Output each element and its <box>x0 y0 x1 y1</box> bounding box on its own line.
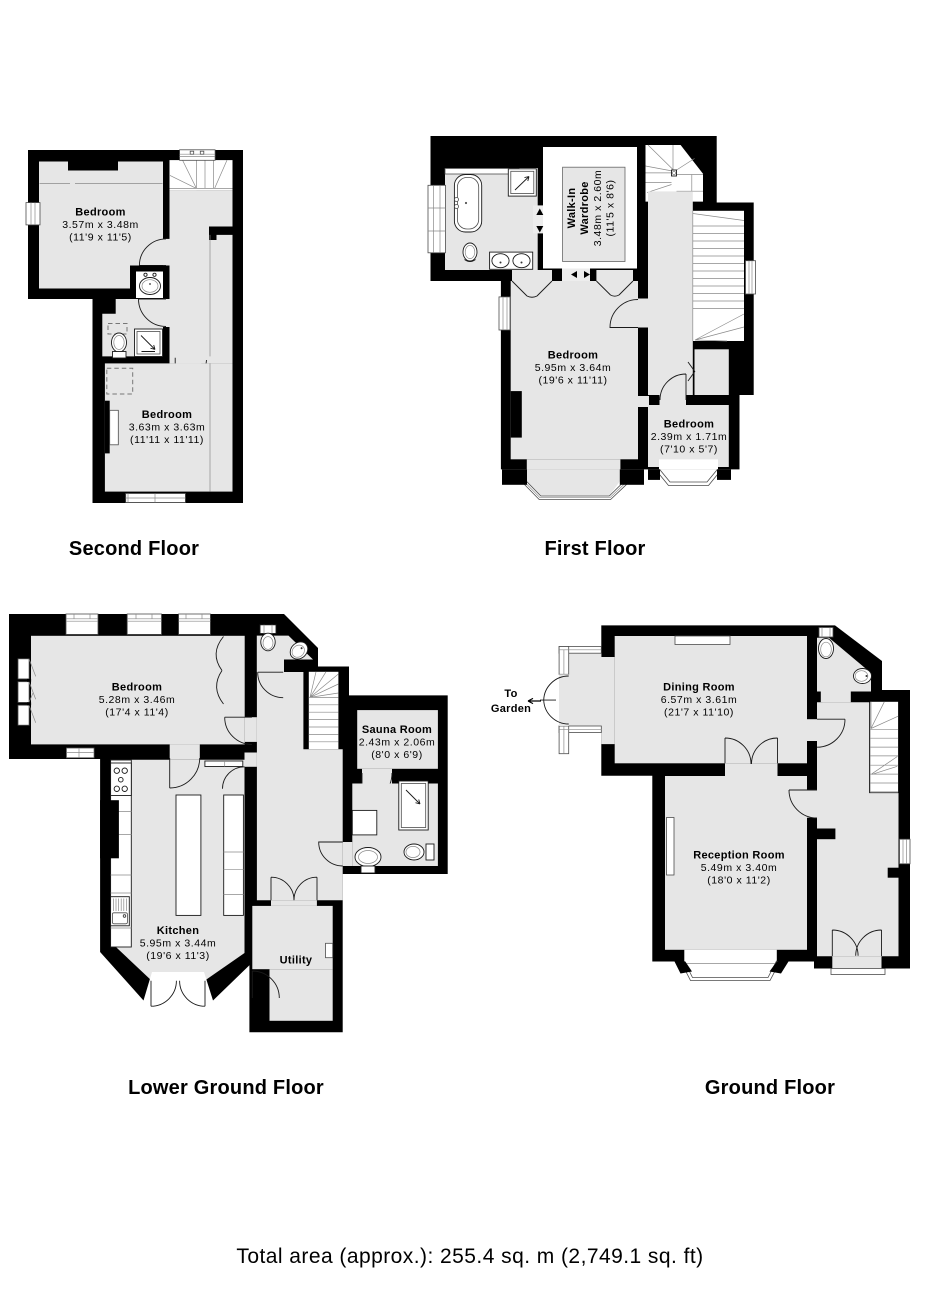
svg-text:3.57m x 3.48m: 3.57m x 3.48m <box>62 219 139 231</box>
svg-text:Walk-In: Walk-In <box>566 188 578 229</box>
svg-text:5.95m x 3.64m: 5.95m x 3.64m <box>535 362 612 374</box>
svg-text:(18'0 x 11'2): (18'0 x 11'2) <box>707 874 771 886</box>
svg-text:Garden: Garden <box>491 703 531 715</box>
svg-text:To: To <box>504 688 517 700</box>
svg-text:3.48m x 2.60m: 3.48m x 2.60m <box>592 170 604 247</box>
svg-text:2.39m x 1.71m: 2.39m x 1.71m <box>651 431 728 443</box>
svg-text:(8'0 x 6'9): (8'0 x 6'9) <box>371 749 423 761</box>
svg-text:Bedroom: Bedroom <box>75 207 125 219</box>
svg-text:(11'11 x 11'11): (11'11 x 11'11) <box>130 434 204 446</box>
svg-text:(19'6 x 11'3): (19'6 x 11'3) <box>146 950 210 962</box>
svg-text:5.49m x 3.40m: 5.49m x 3.40m <box>701 862 778 874</box>
svg-text:Bedroom: Bedroom <box>112 682 162 694</box>
svg-text:Total area (approx.): 255.4 sq: Total area (approx.): 255.4 sq. m (2,749… <box>236 1245 703 1268</box>
svg-text:Utility: Utility <box>280 954 313 966</box>
svg-text:(17'4 x 11'4): (17'4 x 11'4) <box>105 706 169 718</box>
svg-text:5.28m x 3.46m: 5.28m x 3.46m <box>99 694 176 706</box>
svg-text:Sauna Room: Sauna Room <box>362 724 432 736</box>
svg-text:5.95m x 3.44m: 5.95m x 3.44m <box>140 938 217 950</box>
svg-text:(11'9 x 11'5): (11'9 x 11'5) <box>69 231 132 243</box>
svg-text:6.57m x 3.61m: 6.57m x 3.61m <box>661 694 738 706</box>
svg-text:2.43m x 2.06m: 2.43m x 2.06m <box>359 737 436 749</box>
svg-text:3.63m x 3.63m: 3.63m x 3.63m <box>129 421 206 433</box>
svg-text:Lower Ground Floor: Lower Ground Floor <box>128 1077 324 1099</box>
svg-text:(7'10 x 5'7): (7'10 x 5'7) <box>660 443 718 455</box>
svg-text:Wardrobe: Wardrobe <box>579 181 591 234</box>
svg-text:First Floor: First Floor <box>544 538 645 560</box>
svg-text:(11'5 x 8'6): (11'5 x 8'6) <box>605 179 617 236</box>
svg-text:(21'7 x 11'10): (21'7 x 11'10) <box>664 706 734 718</box>
svg-text:Bedroom: Bedroom <box>142 409 192 421</box>
svg-text:Bedroom: Bedroom <box>664 419 714 431</box>
svg-text:Ground Floor: Ground Floor <box>705 1077 835 1099</box>
svg-text:(19'6 x 11'11): (19'6 x 11'11) <box>538 374 607 386</box>
svg-text:Kitchen: Kitchen <box>157 925 199 937</box>
svg-text:Second Floor: Second Floor <box>69 538 199 560</box>
svg-text:Reception Room: Reception Room <box>693 850 785 862</box>
svg-text:Bedroom: Bedroom <box>548 350 598 362</box>
svg-text:Dining Room: Dining Room <box>663 682 735 694</box>
